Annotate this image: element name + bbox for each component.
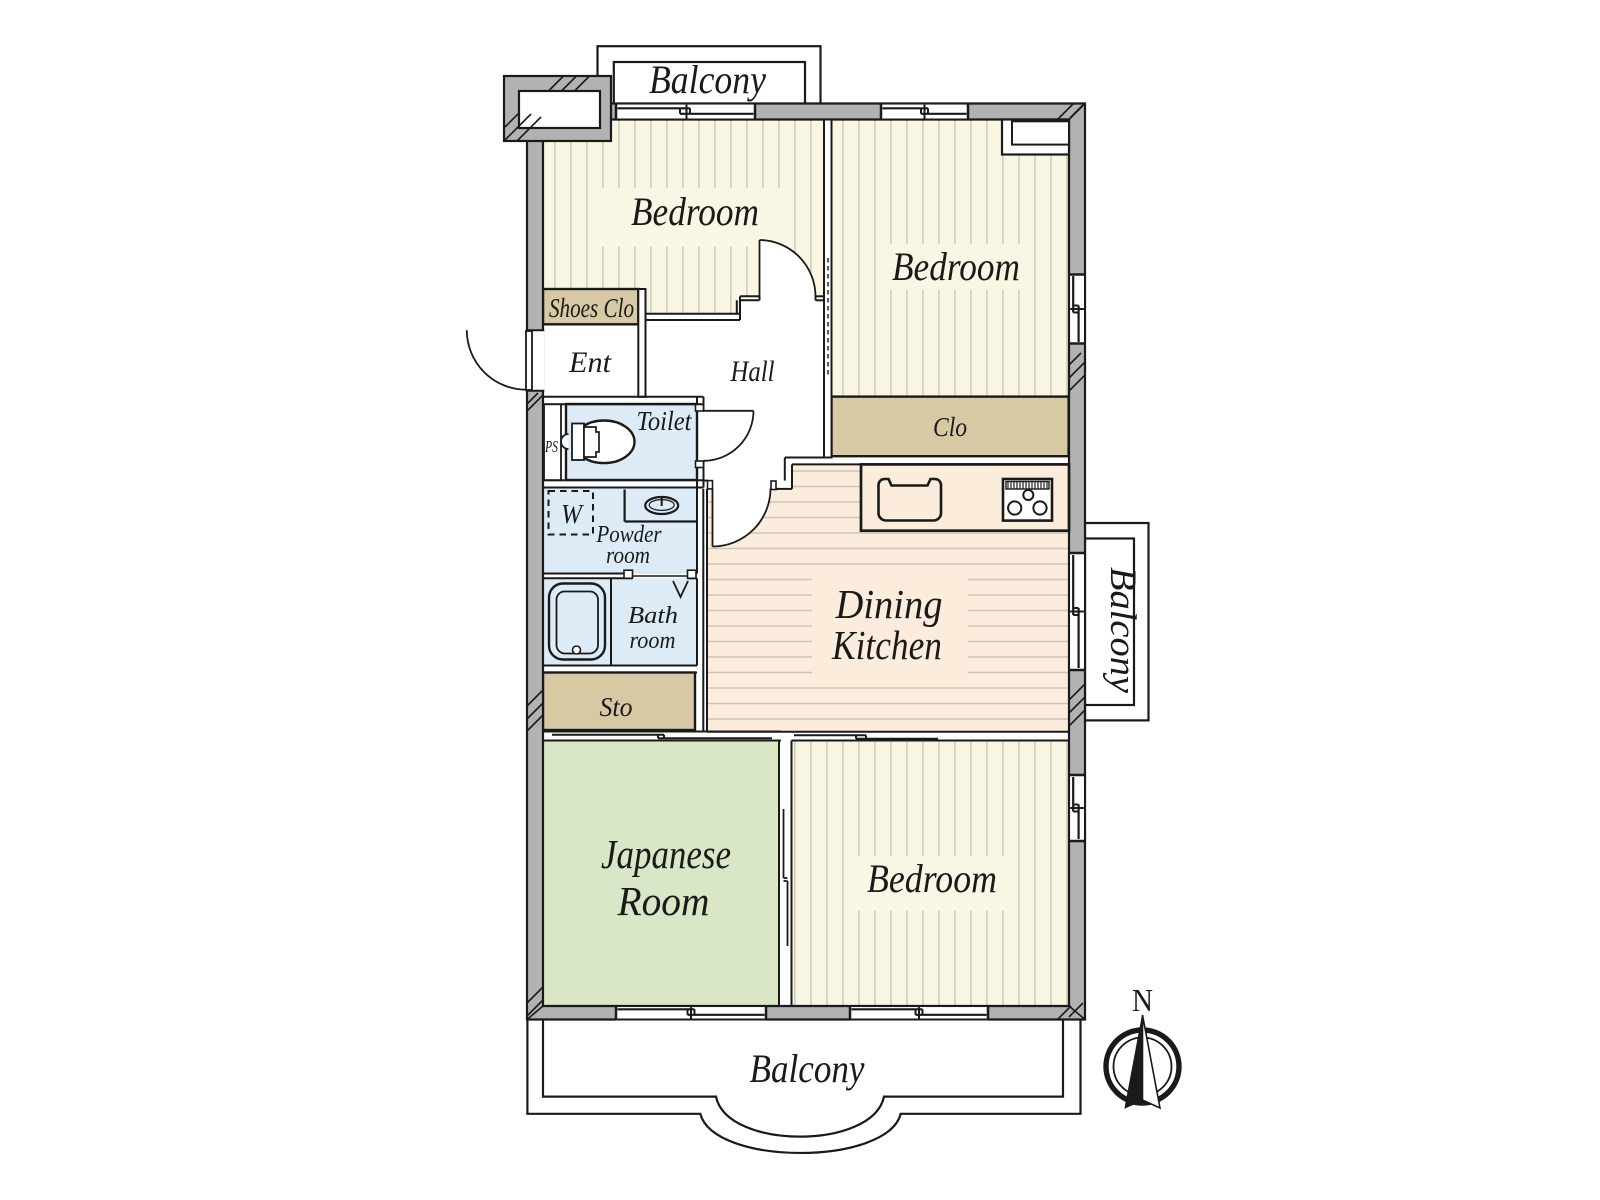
svg-text:Toilet: Toilet xyxy=(637,406,693,436)
svg-text:Balcony: Balcony xyxy=(649,57,766,102)
svg-text:Bedroom: Bedroom xyxy=(867,856,997,901)
svg-text:Shoes Clo: Shoes Clo xyxy=(549,293,634,323)
svg-text:room: room xyxy=(630,628,676,654)
svg-text:N: N xyxy=(1132,982,1153,1018)
svg-text:Bedroom: Bedroom xyxy=(631,189,759,234)
svg-text:room: room xyxy=(606,543,650,569)
svg-text:Sto: Sto xyxy=(600,692,633,722)
svg-text:Kitchen: Kitchen xyxy=(831,622,942,668)
svg-text:Dining: Dining xyxy=(835,581,943,627)
svg-text:Bedroom: Bedroom xyxy=(892,244,1020,289)
svg-text:Japanese: Japanese xyxy=(601,831,731,877)
svg-text:PS: PS xyxy=(544,437,558,456)
svg-text:Balcony: Balcony xyxy=(750,1046,865,1091)
svg-text:Ent: Ent xyxy=(568,346,612,379)
svg-text:W: W xyxy=(561,499,584,529)
svg-text:Room: Room xyxy=(617,878,710,924)
svg-text:Clo: Clo xyxy=(933,412,967,442)
svg-text:Hall: Hall xyxy=(730,355,775,388)
svg-text:Bath: Bath xyxy=(628,603,678,629)
svg-text:Balcony: Balcony xyxy=(1102,567,1143,694)
